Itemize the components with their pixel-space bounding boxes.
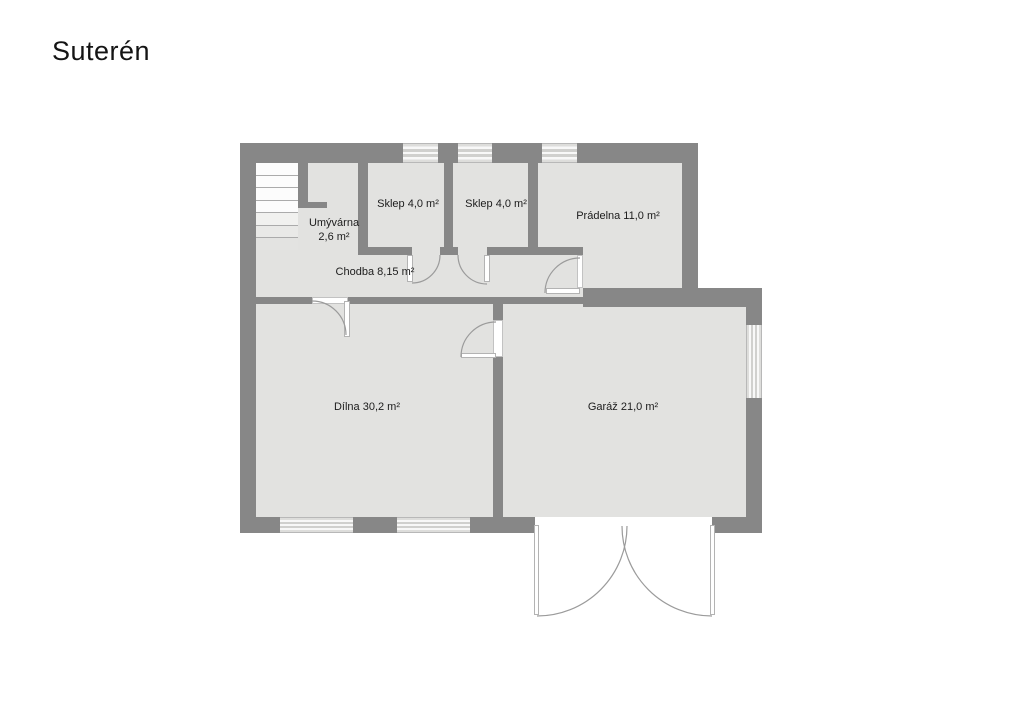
door-leaf-garaz [461, 353, 496, 358]
room-label-umyvarna: Umývárna 2,6 m² [309, 216, 359, 244]
wall-top [492, 143, 542, 163]
wall-top [438, 143, 458, 163]
wall-step-extension [583, 288, 762, 307]
wall-bottom [712, 517, 762, 533]
room-label-pradelna: Prádelna 11,0 m² [576, 209, 660, 223]
wall-right-lower [746, 398, 762, 533]
stair-tread [256, 176, 298, 189]
wall-bottom [353, 517, 397, 533]
room-name: Umývárna [309, 217, 359, 229]
stair-tread [256, 163, 298, 176]
stair-tread [256, 238, 298, 250]
staircase [256, 163, 298, 250]
wall-top [240, 143, 403, 163]
stair-tread [256, 201, 298, 214]
wall-umyvarna-sklep [358, 163, 368, 255]
window [280, 517, 353, 533]
wall-right-lower [746, 307, 762, 325]
wall-dilna-garaz [493, 357, 503, 517]
doorway-garaz [493, 320, 503, 357]
wall-chodba-south [256, 297, 312, 304]
window [403, 143, 438, 163]
wall-bottom [240, 517, 280, 533]
wall-dilna-garaz [493, 304, 503, 320]
room-label-sklep-2: Sklep 4,0 m² [465, 197, 527, 211]
door-leaf-pradelna [546, 288, 580, 294]
room-label-dilna: Dílna 30,2 m² [334, 400, 400, 414]
room-area: 2,6 m² [318, 231, 349, 243]
stair-tread [256, 226, 298, 239]
page-title: Suterén [52, 36, 150, 67]
room-label-chodba: Chodba 8,15 m² [336, 265, 415, 279]
wall-right-upper [682, 143, 698, 290]
garage-door-leaf-left [534, 525, 539, 615]
window [397, 517, 470, 533]
floor-plan: Suterén [0, 0, 1024, 725]
window [542, 143, 577, 163]
garage-door-swing-arc-left [537, 526, 627, 616]
wall-sklep-pradelna [528, 163, 538, 255]
wall-chodba-north [440, 247, 458, 255]
wall-left [240, 143, 256, 533]
garage-door-leaf-right [710, 525, 715, 615]
wall-chodba-north [487, 247, 583, 255]
room-label-garaz: Garáž 21,0 m² [588, 400, 658, 414]
window [458, 143, 492, 163]
doorway-dilna [312, 297, 348, 304]
wall-stairs-stub [298, 202, 327, 208]
window [746, 325, 762, 398]
door-leaf-sklep-2 [484, 255, 490, 282]
stair-tread [256, 213, 298, 226]
doorway-pradelna [577, 255, 583, 288]
wall-chodba-south [348, 297, 583, 304]
wall-chodba-north [358, 247, 412, 255]
wall-top [577, 143, 698, 163]
stair-tread [256, 188, 298, 201]
wall-sklep-sklep [444, 163, 453, 255]
room-label-sklep-1: Sklep 4,0 m² [377, 197, 439, 211]
wall-bottom [470, 517, 535, 533]
garage-door-swing-arc-right [622, 526, 712, 616]
door-leaf-dilna [344, 301, 350, 337]
